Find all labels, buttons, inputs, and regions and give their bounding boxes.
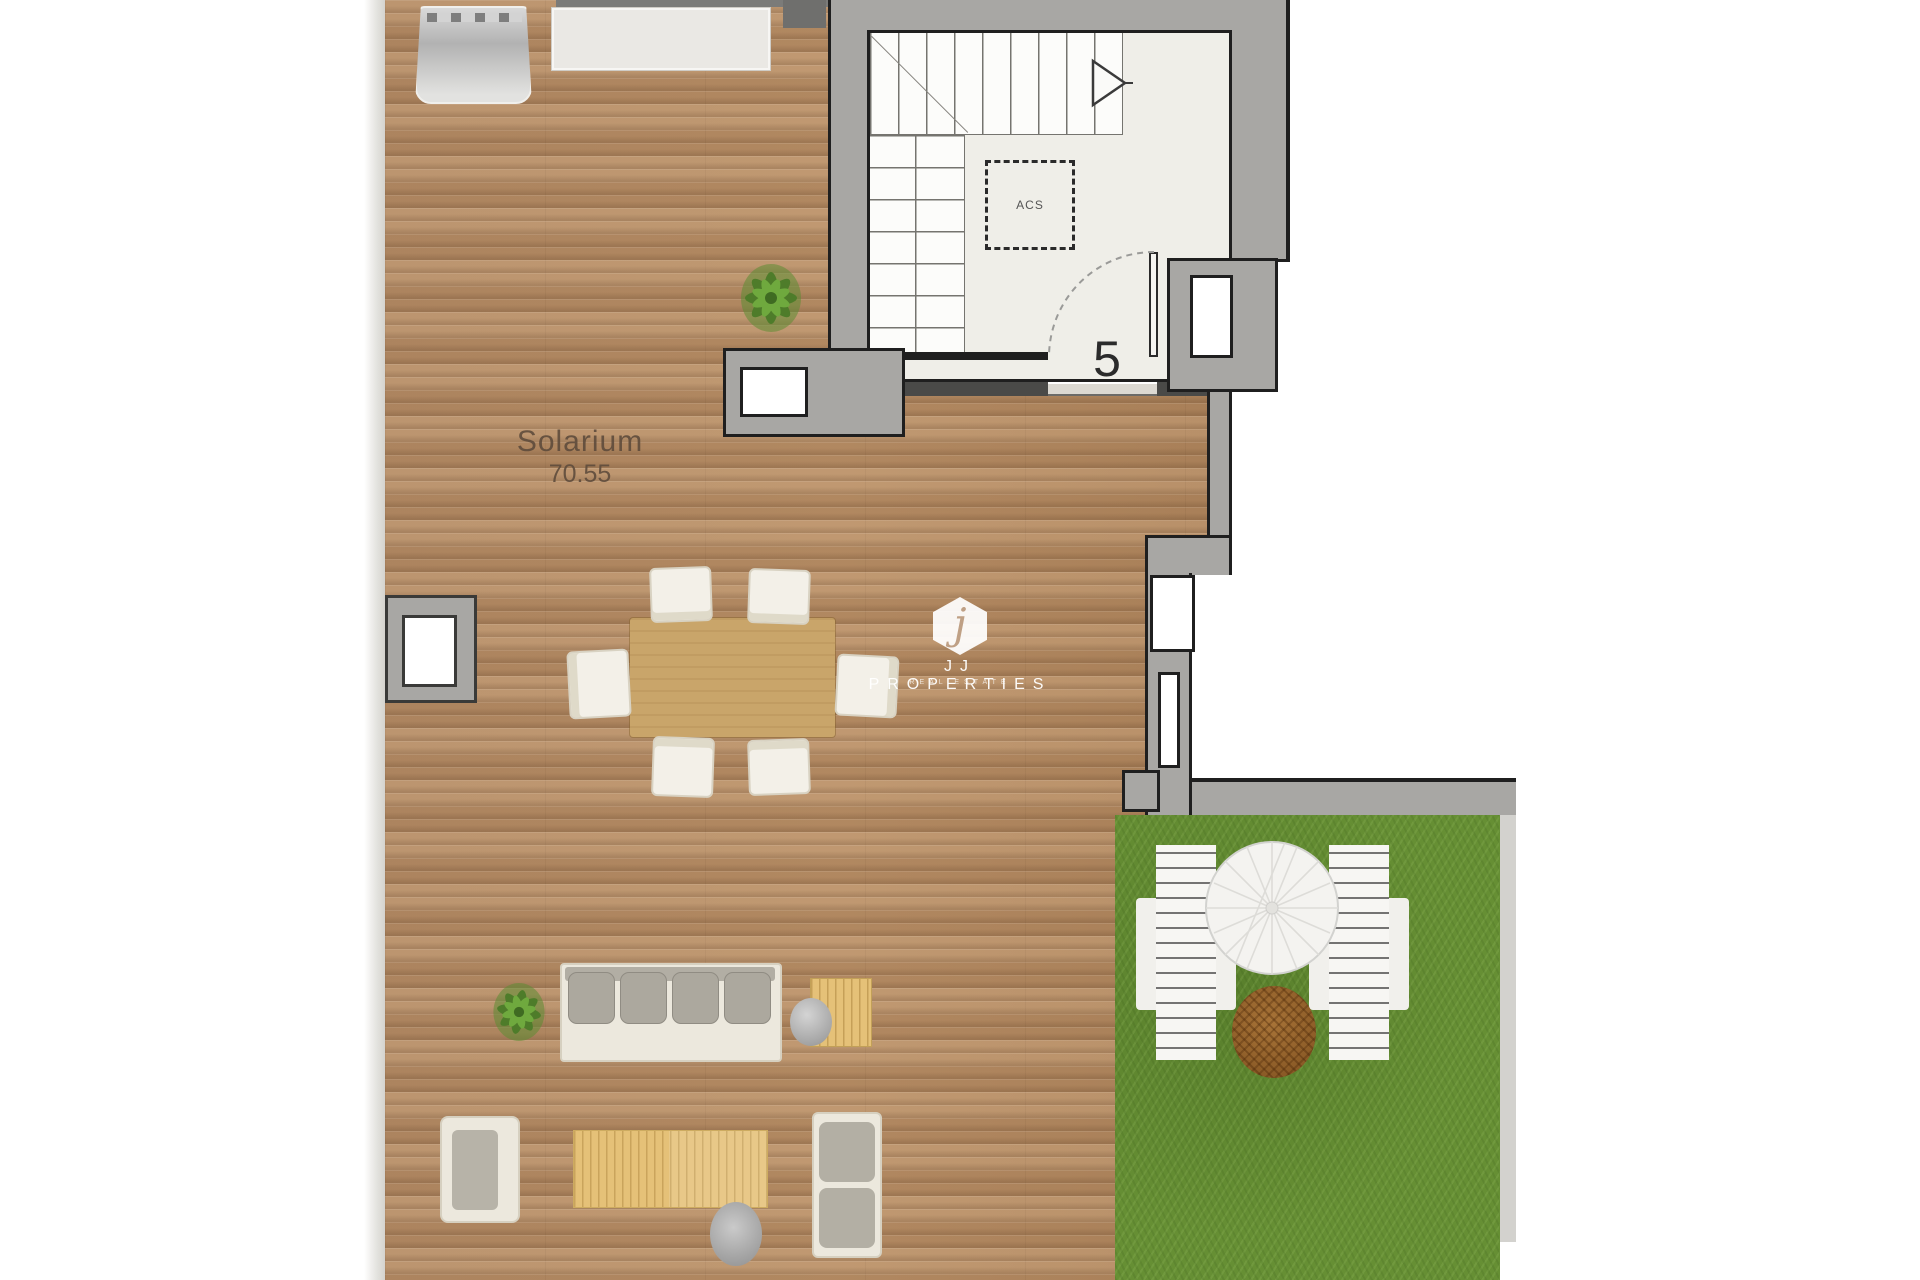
wall-stub: [783, 0, 826, 28]
door-threshold: [1048, 384, 1157, 396]
window: [740, 367, 808, 417]
bench: [552, 8, 770, 70]
sofa-cushion: [620, 972, 667, 1024]
right-wall: [1145, 535, 1232, 575]
window: [1190, 275, 1233, 358]
stairwell-right-wall: [1232, 0, 1290, 262]
stairs-lower-flight: [870, 135, 965, 353]
dining-chair: [747, 738, 811, 796]
window: [1150, 575, 1195, 652]
sun-lounger: [415, 6, 532, 104]
sofa-cushion: [819, 1122, 875, 1182]
garden-table: [1232, 986, 1316, 1078]
room-area-label: 70.55: [470, 460, 690, 489]
dining-chair: [566, 648, 631, 719]
sofa-cushion: [819, 1188, 875, 1248]
dining-chair: [649, 566, 713, 623]
sofa-cushion: [724, 972, 771, 1024]
stairwell-left-wall: [828, 0, 867, 396]
acs-unit: ACS: [985, 160, 1075, 250]
parasol-umbrella: [1202, 838, 1342, 978]
round-side-table: [710, 1202, 762, 1266]
sofa-cushion: [568, 972, 615, 1024]
armchair: [440, 1116, 520, 1223]
stairs-upper-flight: [870, 33, 1123, 135]
armchair-cushion: [452, 1130, 498, 1210]
garden-edge-strip: [1500, 815, 1516, 1242]
dining-chair: [747, 568, 811, 625]
right-wall: [1207, 392, 1232, 537]
stairwell-top-wall: [867, 0, 1290, 30]
brand-initial: j: [953, 603, 966, 645]
sofa: [560, 963, 782, 1062]
sofa: [812, 1112, 882, 1258]
brand-tagline: REAL ESTATE: [850, 679, 1070, 686]
stool: [790, 998, 832, 1046]
dining-chair: [651, 736, 715, 798]
window: [1158, 672, 1180, 768]
stair-direction-arrow-icon: [1090, 58, 1134, 110]
room-number: 5: [1072, 330, 1142, 388]
coffee-table: [573, 1130, 768, 1208]
acs-label: ACS: [1016, 198, 1044, 212]
potted-plant: [737, 258, 805, 338]
lounger-headrest: [427, 13, 522, 22]
garden-wall: [1192, 778, 1516, 815]
window: [402, 615, 457, 687]
brand-name: JJ PROPERTIES: [850, 658, 1070, 694]
sofa-cushion: [672, 972, 719, 1024]
wall-endcap: [1122, 770, 1160, 812]
dining-table: [630, 618, 835, 737]
room-label: Solarium: [470, 425, 690, 459]
floor-plan: ACS 5: [0, 0, 1920, 1280]
potted-plant: [490, 972, 548, 1052]
